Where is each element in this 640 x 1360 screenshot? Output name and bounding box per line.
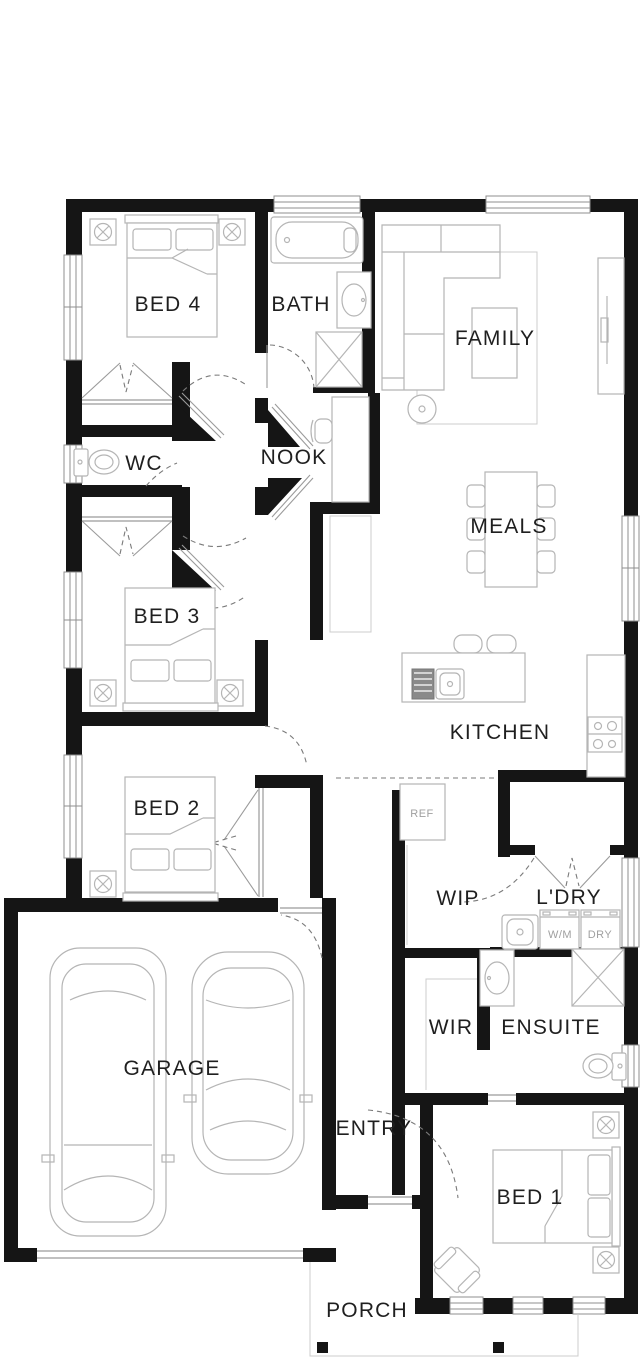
bed2-bed-icon [123,777,218,901]
bath-shower-icon [316,332,362,387]
room-label-bed3: BED 3 [134,605,201,628]
room-label-bed2: BED 2 [134,797,201,820]
floor-plan: REF W/M DRY [0,0,640,1360]
room-label-family: FAMILY [455,327,535,350]
ref-label: REF [410,808,434,820]
ensuite-vanity-icon [480,950,514,1006]
car-icon [42,948,174,1236]
room-label-nook: NOOK [261,446,328,469]
kitchen-bench [587,655,625,777]
bath-vanity-icon [337,272,371,328]
room-label-garage: GARAGE [123,1057,220,1080]
room-label-kitchen: KITCHEN [450,721,551,744]
room-label-bed4: BED 4 [135,293,202,316]
dry-label: DRY [588,929,613,941]
tv-unit-icon [598,258,624,394]
room-label-meals: MEALS [470,515,547,538]
bathtub-icon [271,217,363,263]
fridge-space: REF [400,784,445,945]
bed1-chair-icon [430,1243,484,1297]
room-label-bed1: BED 1 [497,1186,564,1209]
dryer-icon: DRY [581,910,620,949]
washing-machine-icon: W/M [540,910,579,949]
ensuite-shower-icon [572,949,624,1006]
room-label-entry: ENTRY [336,1117,413,1140]
room-label-ensuite: ENSUITE [501,1016,600,1039]
linen-cupboard-icon [330,516,371,632]
room-label-wir: WIR [429,1016,473,1039]
wc-toilet-icon [74,449,119,476]
door-jambs [172,400,302,591]
room-label-wip: WIP [436,887,479,910]
room-label-porch: PORCH [326,1299,408,1322]
ensuite-toilet-icon [583,1053,626,1080]
room-label-ldry: L'DRY [536,886,602,909]
room-label-wc: WC [125,452,162,475]
kitchen-island-icon [402,635,525,702]
room-label-bath: BATH [271,293,330,316]
bed4-bed-icon [125,215,218,337]
laundry-tub-icon [502,915,538,949]
wm-label: W/M [548,929,572,941]
